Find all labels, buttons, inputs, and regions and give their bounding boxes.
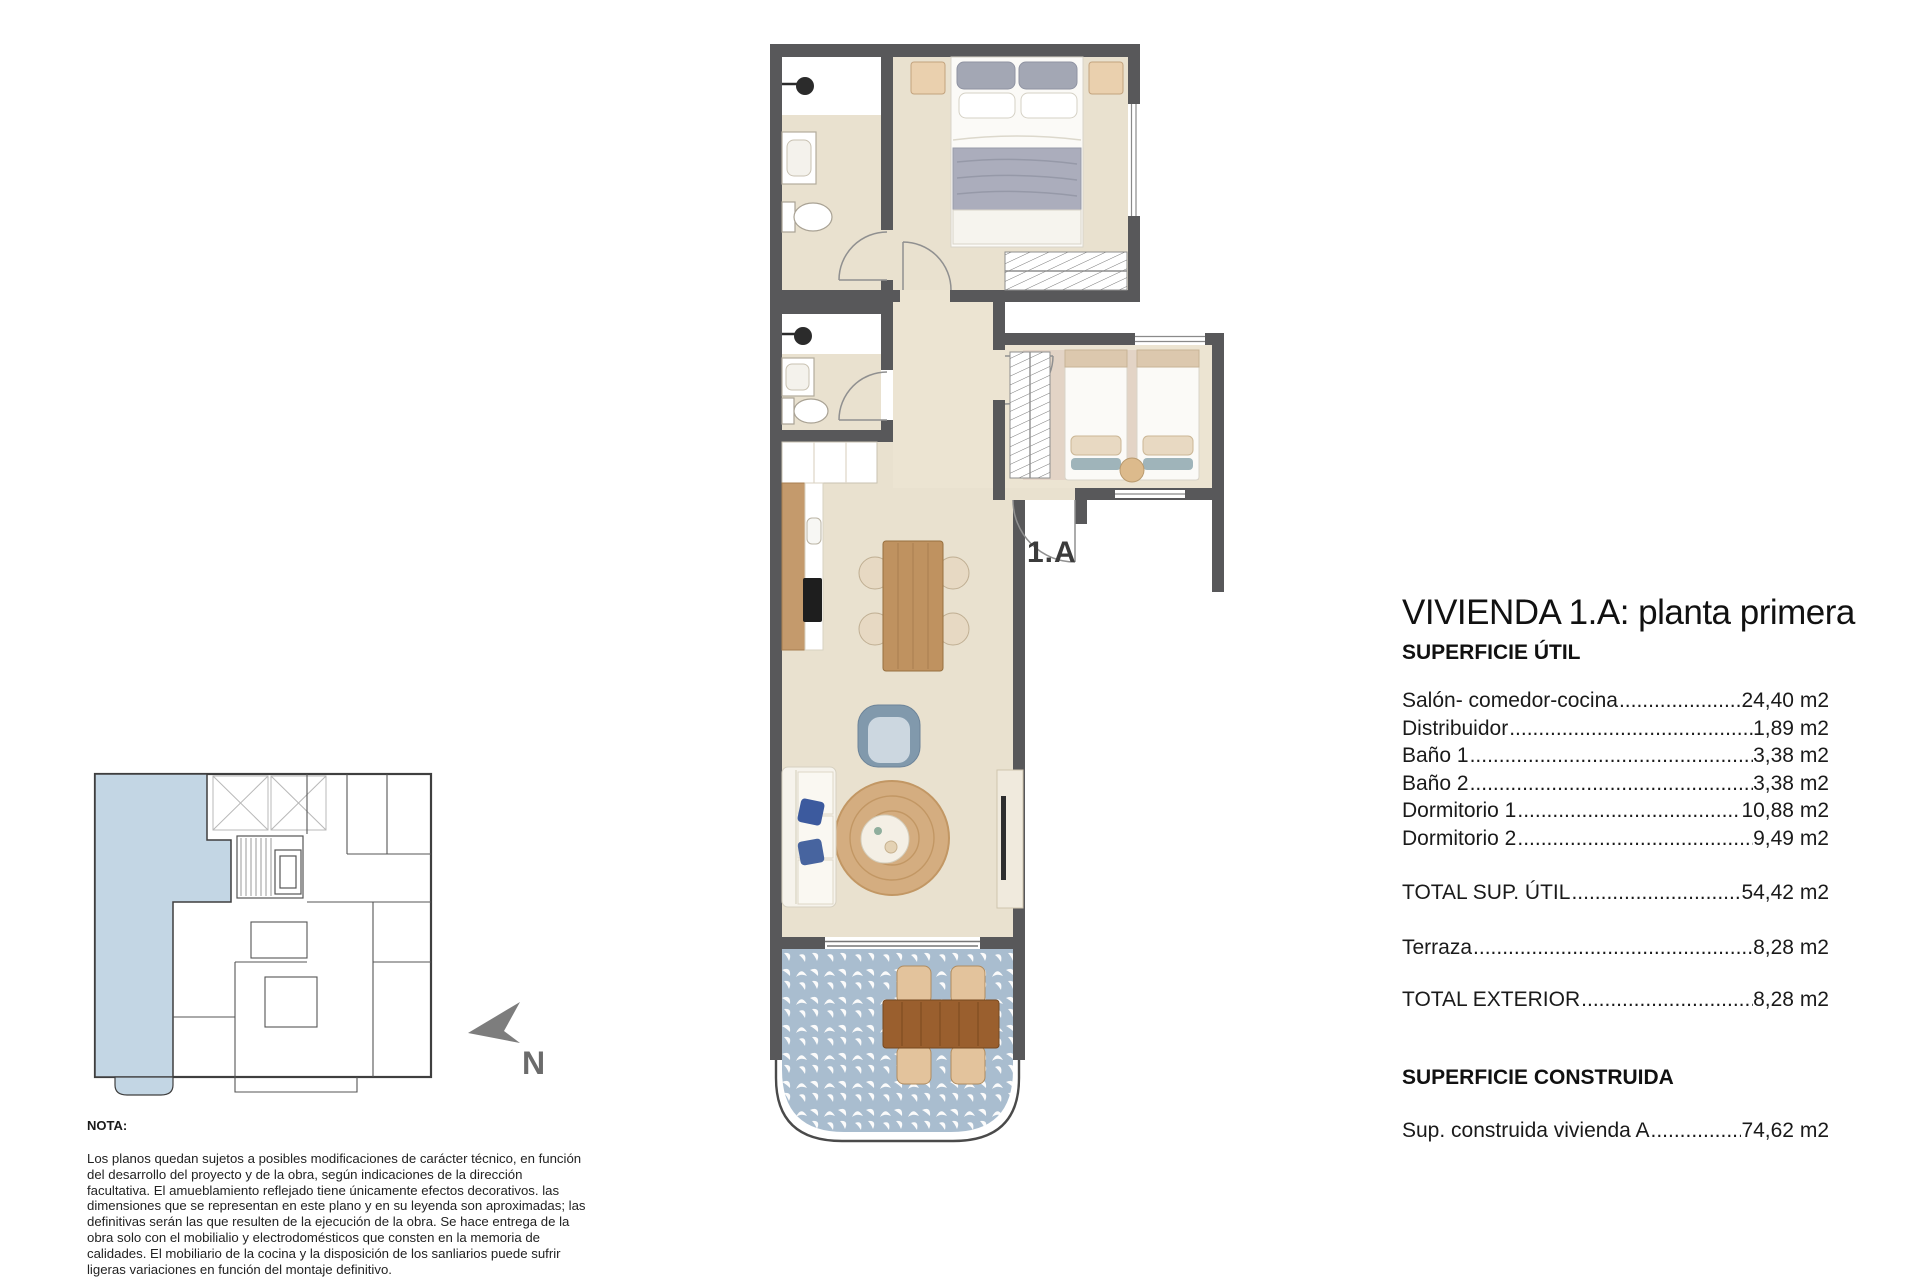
row-value: 74,62 m2 <box>1741 1117 1829 1145</box>
dot-leader: ........................................… <box>1472 934 1753 962</box>
legal-note: NOTA: Los planos quedan sujetos a posibl… <box>87 1118 589 1277</box>
window-bedroom2-top <box>1135 333 1205 345</box>
page-title: VIVIENDA 1.A: planta primera <box>1402 593 1880 633</box>
armchair-icon <box>858 705 920 767</box>
dot-leader: ........................................… <box>1570 879 1741 907</box>
row-label: Dormitorio 1 <box>1402 797 1516 825</box>
highlighted-unit-terrace <box>115 1077 173 1095</box>
table-row: Dormitorio 1 ...........................… <box>1402 797 1829 825</box>
nightstand-icon <box>1089 62 1123 94</box>
terrace-table-icon <box>883 1000 999 1048</box>
table-row: Dormitorio 2 ...........................… <box>1402 825 1829 853</box>
nightstand-icon <box>911 62 945 94</box>
pouf-icon <box>1120 458 1144 482</box>
window-bedroom2-bottom <box>1115 490 1185 498</box>
tv-unit-icon <box>997 770 1023 908</box>
dot-leader: ........................................… <box>1580 986 1753 1014</box>
north-label: N <box>522 1045 545 1081</box>
row-value: 3,38 m2 <box>1753 770 1829 798</box>
terraza-row: Terraza ................................… <box>1402 934 1829 962</box>
dining-table-icon <box>883 541 943 671</box>
note-heading: NOTA: <box>87 1118 589 1133</box>
key-plan <box>85 762 465 1112</box>
dot-leader: ........................................… <box>1516 797 1741 825</box>
row-label: Sup. construida vivienda A <box>1402 1117 1650 1145</box>
north-arrow-icon <box>468 1002 520 1043</box>
row-value: 24,40 m2 <box>1741 687 1829 715</box>
total-exterior-row: TOTAL EXTERIOR .........................… <box>1402 986 1829 1014</box>
plan-sheet-page: { "plan": { "unit_label": "1.A", "colors… <box>0 0 1920 1280</box>
wardrobe-icon <box>1005 252 1127 290</box>
row-label: Terraza <box>1402 934 1472 962</box>
double-bed-icon <box>951 57 1083 247</box>
surface-table: Salón- comedor-cocina ..................… <box>1402 687 1829 1144</box>
floor-plan: 1.A <box>765 40 1237 1160</box>
sliding-door-terrace <box>825 937 980 949</box>
construida-row: Sup. construida vivienda A .............… <box>1402 1117 1829 1145</box>
table-row: Salón- comedor-cocina ..................… <box>1402 687 1829 715</box>
sofa-icon <box>782 767 836 907</box>
dot-leader: ........................................… <box>1508 715 1753 743</box>
row-label: Salón- comedor-cocina <box>1402 687 1618 715</box>
bedroom2 <box>1010 350 1199 482</box>
row-value: 10,88 m2 <box>1741 797 1829 825</box>
dot-leader: ........................................… <box>1516 825 1753 853</box>
row-value: 9,49 m2 <box>1753 825 1829 853</box>
table-row: Baño 1 .................................… <box>1402 742 1829 770</box>
row-value: 8,28 m2 <box>1753 986 1829 1014</box>
cooktop-icon <box>803 578 822 622</box>
row-label: TOTAL SUP. ÚTIL <box>1402 879 1570 907</box>
toilet-icon <box>782 202 832 232</box>
table-row: Baño 2 .................................… <box>1402 770 1829 798</box>
terrace-chair-icon <box>897 1046 931 1084</box>
table-row: Distribuidor ...........................… <box>1402 715 1829 743</box>
unit-label: 1.A <box>1027 536 1077 569</box>
dot-leader: ........................................… <box>1618 687 1742 715</box>
row-value: 1,89 m2 <box>1753 715 1829 743</box>
row-label: Baño 2 <box>1402 770 1469 798</box>
dot-leader: ........................................… <box>1469 742 1754 770</box>
row-label: Baño 1 <box>1402 742 1469 770</box>
area-details-panel: VIVIENDA 1.A: planta primera SUPERFICIE … <box>1402 593 1880 1144</box>
section-heading-superficie-util: SUPERFICIE ÚTIL <box>1402 641 1880 665</box>
dot-leader: ........................................… <box>1469 770 1754 798</box>
toilet-icon <box>782 398 828 424</box>
wardrobe-icon <box>1010 352 1050 478</box>
section-heading-superficie-construida: SUPERFICIE CONSTRUIDA <box>1402 1066 1829 1090</box>
coffee-table-icon <box>861 815 909 863</box>
sink-icon <box>782 132 816 184</box>
single-bed-icon <box>1065 350 1127 480</box>
terrace-chair-icon <box>951 1046 985 1084</box>
single-bed-icon <box>1137 350 1199 480</box>
row-value: 8,28 m2 <box>1753 934 1829 962</box>
row-label: Dormitorio 2 <box>1402 825 1516 853</box>
row-label: TOTAL EXTERIOR <box>1402 986 1580 1014</box>
north-arrow: N <box>468 998 568 1083</box>
row-label: Distribuidor <box>1402 715 1508 743</box>
terrace-chair-icon <box>951 966 985 1004</box>
note-body: Los planos quedan sujetos a posibles mod… <box>87 1151 589 1277</box>
dot-leader: ........................................… <box>1650 1117 1742 1145</box>
window-bedroom1 <box>1128 104 1140 216</box>
common-area-wall <box>1212 500 1224 592</box>
row-value: 3,38 m2 <box>1753 742 1829 770</box>
sink-icon <box>782 358 814 396</box>
row-value: 54,42 m2 <box>1741 879 1829 907</box>
total-util-row: TOTAL SUP. ÚTIL ........................… <box>1402 879 1829 907</box>
terrace-chair-icon <box>897 966 931 1004</box>
